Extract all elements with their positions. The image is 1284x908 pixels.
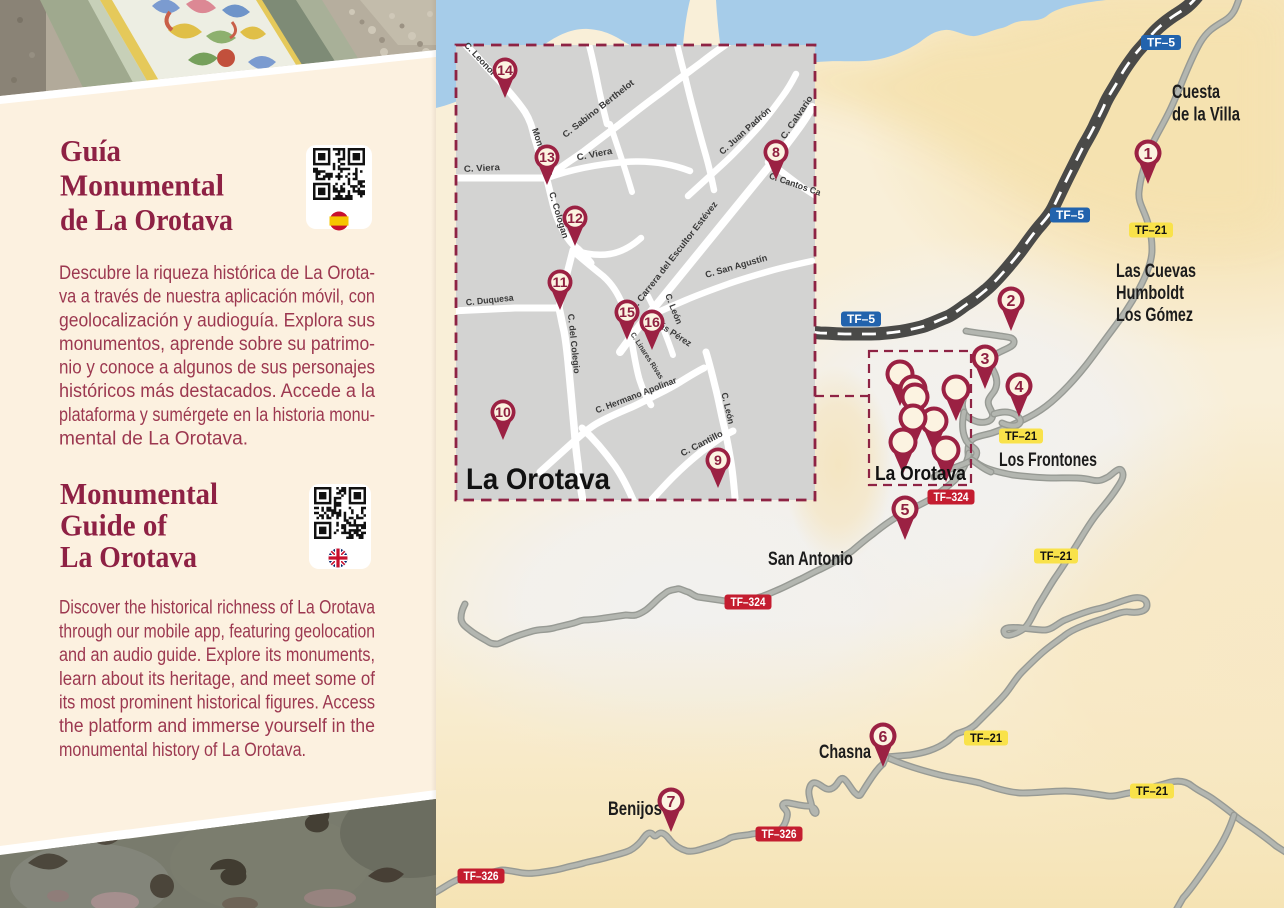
svg-text:4: 4: [1015, 379, 1024, 396]
svg-text:5: 5: [901, 502, 910, 519]
svg-text:TF–21: TF–21: [1005, 429, 1037, 443]
svg-text:Humboldt: Humboldt: [1116, 282, 1184, 304]
svg-text:TF–21: TF–21: [1135, 223, 1167, 237]
svg-text:San Antonio: San Antonio: [768, 548, 853, 570]
svg-text:1: 1: [1144, 146, 1153, 163]
svg-text:La Orotava: La Orotava: [875, 463, 967, 485]
svg-text:La Orotava: La Orotava: [466, 463, 610, 496]
svg-text:TF–326: TF–326: [762, 827, 797, 841]
svg-text:7: 7: [667, 794, 676, 811]
svg-text:6: 6: [879, 729, 888, 746]
svg-text:TF–326: TF–326: [464, 869, 499, 883]
svg-text:2: 2: [1007, 293, 1016, 310]
svg-text:8: 8: [772, 145, 780, 161]
svg-text:TF–324: TF–324: [731, 595, 766, 609]
svg-text:14: 14: [497, 63, 513, 79]
svg-text:12: 12: [567, 211, 583, 227]
svg-text:9: 9: [714, 453, 722, 469]
svg-text:TF–21: TF–21: [1040, 549, 1072, 563]
svg-text:15: 15: [619, 305, 635, 321]
svg-text:10: 10: [495, 405, 511, 421]
svg-text:Las Cuevas: Las Cuevas: [1116, 260, 1196, 282]
svg-text:3: 3: [981, 351, 990, 368]
svg-text:11: 11: [553, 275, 568, 291]
svg-text:TF–5: TF–5: [1056, 208, 1084, 222]
svg-text:TF–324: TF–324: [934, 490, 969, 504]
svg-text:TF–21: TF–21: [1136, 784, 1168, 798]
svg-text:16: 16: [644, 315, 660, 331]
svg-text:13: 13: [539, 150, 555, 166]
svg-text:TF–5: TF–5: [847, 312, 875, 326]
svg-text:Chasna: Chasna: [819, 741, 871, 763]
svg-text:Benijos: Benijos: [608, 798, 662, 820]
svg-text:C. Viera: C. Viera: [464, 162, 502, 174]
svg-text:Los Frontones: Los Frontones: [999, 449, 1097, 471]
svg-text:de la Villa: de la Villa: [1172, 104, 1240, 126]
svg-text:Los Gómez: Los Gómez: [1116, 304, 1193, 326]
svg-text:TF–21: TF–21: [970, 731, 1002, 745]
svg-text:Cuesta: Cuesta: [1172, 81, 1220, 103]
svg-text:TF–5: TF–5: [1147, 36, 1175, 50]
